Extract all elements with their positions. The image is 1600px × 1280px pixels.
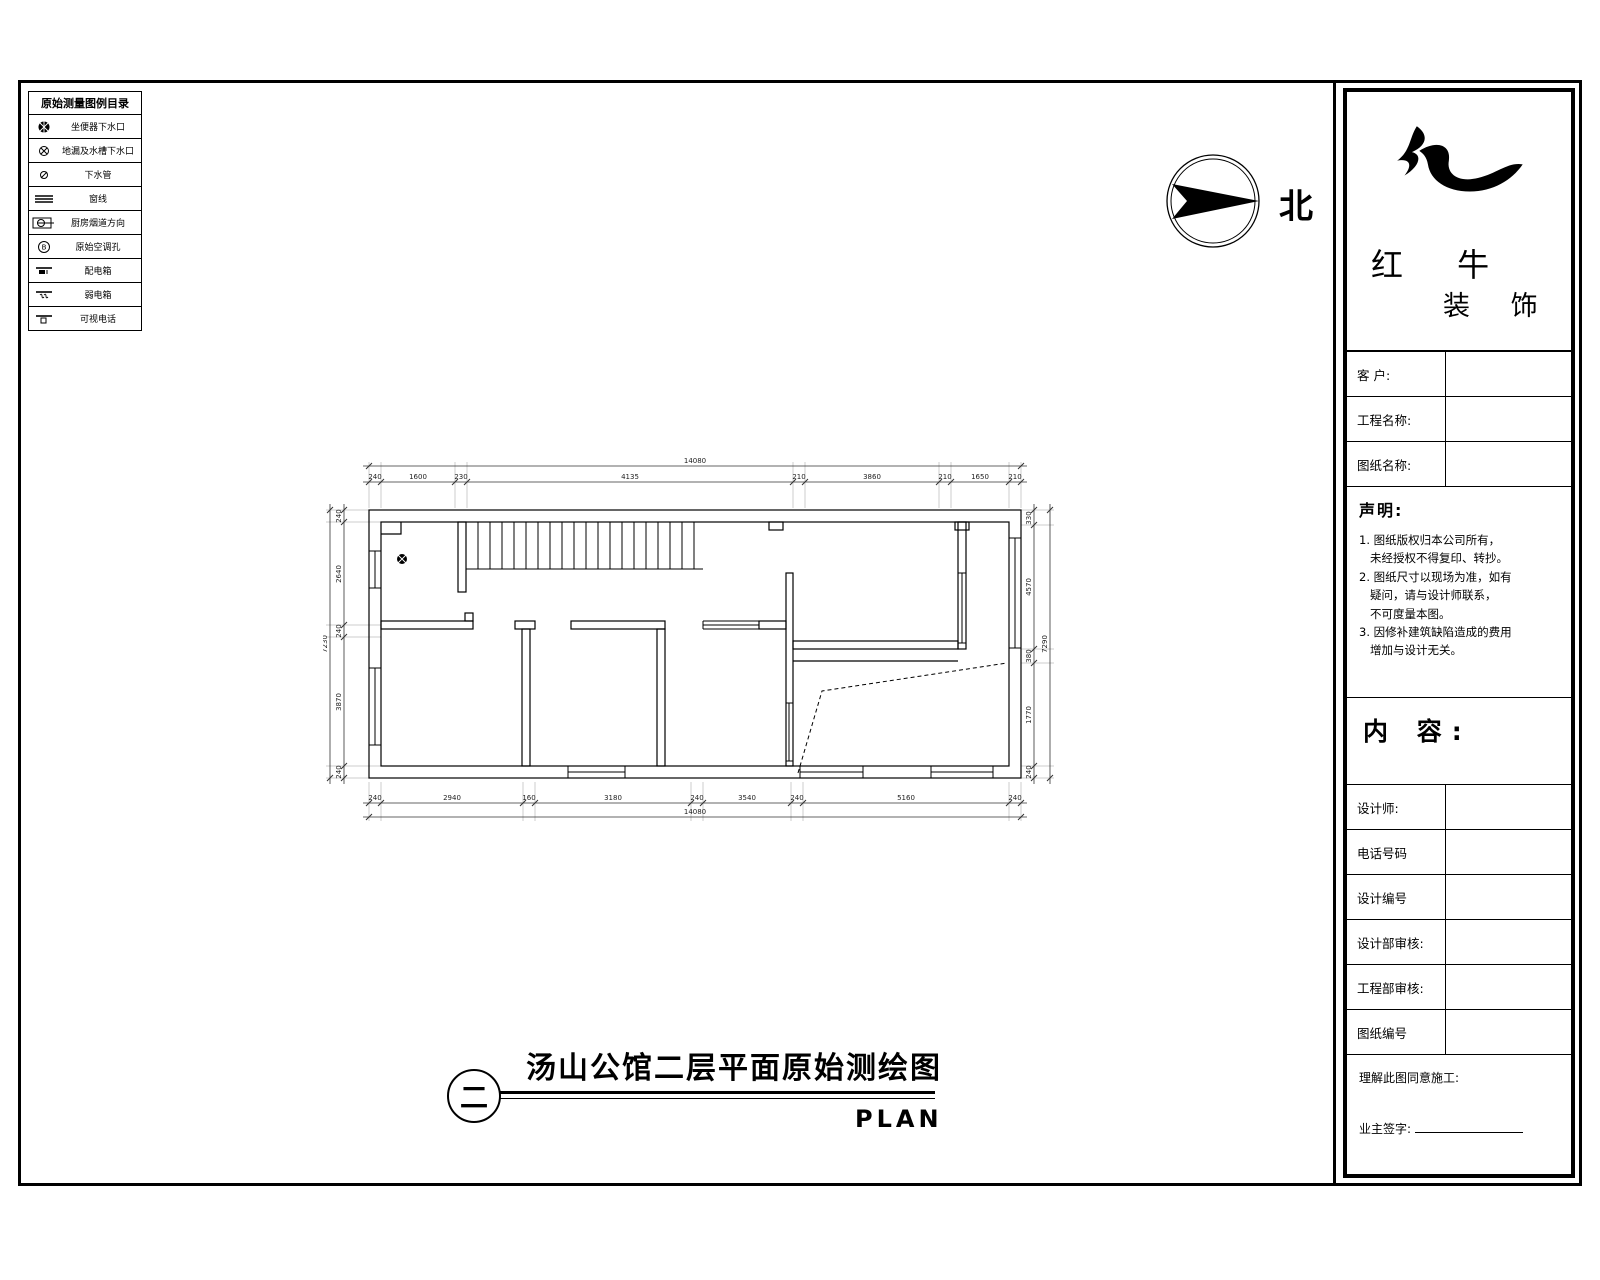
svg-text:14080: 14080 <box>684 457 706 465</box>
svg-text:3870: 3870 <box>335 693 343 711</box>
outer-wall <box>369 510 1021 778</box>
legend-item-label: 弱电箱 <box>57 288 139 301</box>
legend-item-label: 坐便器下水口 <box>57 120 139 133</box>
field-value <box>1446 352 1571 396</box>
statement-line: 疑问，请与设计师联系， <box>1359 586 1563 604</box>
field-design-dept-review: 设计部审核: <box>1347 920 1571 965</box>
legend-item-label: 原始空调孔 <box>57 240 139 253</box>
field-value <box>1446 875 1571 919</box>
svg-text:240: 240 <box>335 624 343 637</box>
svg-text:230: 230 <box>454 473 467 481</box>
toilet-drain-icon <box>31 120 57 134</box>
field-value <box>1446 965 1571 1009</box>
logo-section: 红 牛 装 饰 <box>1347 92 1571 352</box>
legend-item-label: 配电箱 <box>57 264 139 277</box>
field-value <box>1446 830 1571 874</box>
field-label: 工程部审核: <box>1347 965 1446 1009</box>
statement-heading: 声明: <box>1359 497 1563 521</box>
signature-section: 理解此图同意施工: 业主签字: <box>1347 1055 1571 1174</box>
windows <box>369 538 1021 778</box>
svg-text:240: 240 <box>335 765 343 778</box>
ac-hole-icon: B <box>31 240 57 254</box>
svg-text:240: 240 <box>368 794 381 802</box>
svg-text:B: B <box>42 243 47 251</box>
svg-text:4570: 4570 <box>1025 578 1033 596</box>
statement-line: 未经授权不得复印、转抄。 <box>1359 549 1563 567</box>
svg-text:4135: 4135 <box>621 473 639 481</box>
field-designer: 设计师: <box>1347 785 1571 830</box>
svg-text:3540: 3540 <box>738 794 756 802</box>
svg-text:7230: 7230 <box>323 635 329 653</box>
legend-item: 配电箱 <box>29 258 141 282</box>
walls <box>369 510 1021 778</box>
field-eng-dept-review: 工程部审核: <box>1347 965 1571 1010</box>
drawing-sheet: 原始测量图例目录 坐便器下水口 地漏及水槽下水口 下水管 窗线 <box>0 0 1600 1280</box>
field-design-number: 设计编号 <box>1347 875 1571 920</box>
drain-pipe-icon <box>31 169 57 181</box>
svg-text:240: 240 <box>790 794 803 802</box>
window-line-icon <box>31 194 57 204</box>
north-arrow <box>1172 184 1259 219</box>
plan-label: PLAN <box>855 1105 943 1133</box>
floor-drain-symbol <box>397 554 407 564</box>
statement-line: 1. 图纸版权归本公司所有， <box>1359 531 1563 549</box>
svg-text:3860: 3860 <box>863 473 881 481</box>
field-value <box>1446 785 1571 829</box>
field-label: 工程名称: <box>1347 397 1446 441</box>
video-phone-icon <box>31 313 57 325</box>
legend-item: 下水管 <box>29 162 141 186</box>
field-label: 设计部审核: <box>1347 920 1446 964</box>
legend-title: 原始测量图例目录 <box>28 91 142 115</box>
company-name-line2: 装 饰 <box>1443 284 1554 323</box>
title-rule <box>457 1091 935 1094</box>
corner-notch <box>381 522 401 534</box>
company-logo-icon <box>1375 118 1535 228</box>
agree-construction-label: 理解此图同意施工: <box>1359 1069 1563 1086</box>
sheet-number-symbol: 二 <box>447 1069 501 1123</box>
content-section: 内 容: <box>1347 698 1571 785</box>
field-drawing-name: 图纸名称: <box>1347 442 1571 487</box>
company-name-line1: 红 牛 <box>1371 240 1511 286</box>
svg-text:240: 240 <box>690 794 703 802</box>
svg-text:380: 380 <box>1025 649 1033 662</box>
sheet-title: 汤山公馆二层平面原始测绘图 <box>526 1043 942 1087</box>
inner-wall <box>381 522 1009 766</box>
signature-line <box>1415 1120 1523 1133</box>
field-label: 图纸名称: <box>1347 442 1446 486</box>
field-client: 客 户: <box>1347 352 1571 397</box>
field-label: 图纸编号 <box>1347 1010 1446 1054</box>
field-drawing-number: 图纸编号 <box>1347 1010 1571 1055</box>
field-label: 设计编号 <box>1347 875 1446 919</box>
title-rule <box>457 1098 935 1099</box>
svg-text:210: 210 <box>938 473 951 481</box>
legend-item: 厨房烟道方向 <box>29 210 141 234</box>
legend-item-label: 厨房烟道方向 <box>57 216 139 229</box>
compass-graphic <box>1153 141 1278 261</box>
field-label: 电话号码 <box>1347 830 1446 874</box>
svg-text:7290: 7290 <box>1041 635 1049 653</box>
legend-item: 窗线 <box>29 186 141 210</box>
border-frame: 原始测量图例目录 坐便器下水口 地漏及水槽下水口 下水管 窗线 <box>18 80 1582 1186</box>
field-value <box>1446 397 1571 441</box>
dimension-labels: 240 1600 230 4135 210 3860 210 1650 210 … <box>323 457 1049 816</box>
statement-section: 声明: 1. 图纸版权归本公司所有， 未经授权不得复印、转抄。 2. 图纸尺寸以… <box>1347 487 1571 698</box>
svg-text:5160: 5160 <box>897 794 915 802</box>
field-project-name: 工程名称: <box>1347 397 1571 442</box>
owner-signature-text: 业主签字: <box>1359 1122 1411 1136</box>
legend-item-label: 地漏及水槽下水口 <box>57 144 139 157</box>
legend-item-label: 可视电话 <box>57 312 139 325</box>
svg-text:330: 330 <box>1025 511 1033 524</box>
content-heading: 内 容: <box>1363 712 1472 748</box>
legend-item: 可视电话 <box>29 306 141 330</box>
svg-text:210: 210 <box>1008 473 1021 481</box>
kitchen-flue-icon <box>31 215 57 231</box>
field-label: 设计师: <box>1347 785 1446 829</box>
power-box-icon <box>31 265 57 277</box>
svg-text:2640: 2640 <box>335 565 343 583</box>
statement-line: 2. 图纸尺寸以现场为准，如有 <box>1359 568 1563 586</box>
field-label: 客 户: <box>1347 352 1446 396</box>
field-value <box>1446 920 1571 964</box>
stairs <box>466 522 703 569</box>
field-phone: 电话号码 <box>1347 830 1571 875</box>
legend-item: 弱电箱 <box>29 282 141 306</box>
title-block-panel: 红 牛 装 饰 客 户: 工程名称: 图纸名称: 声明: 1. <box>1333 83 1579 1183</box>
svg-text:3180: 3180 <box>604 794 622 802</box>
svg-text:1600: 1600 <box>409 473 427 481</box>
legend-item-label: 窗线 <box>57 192 139 205</box>
svg-text:210: 210 <box>792 473 805 481</box>
dashed-slope-line <box>798 663 1007 773</box>
svg-text:240: 240 <box>335 509 343 522</box>
statement-line: 增加与设计无关。 <box>1359 641 1563 659</box>
svg-text:240: 240 <box>1025 765 1033 778</box>
field-value <box>1446 1010 1571 1054</box>
legend-item-label: 下水管 <box>57 168 139 181</box>
weak-box-icon <box>31 289 57 301</box>
legend-item: 坐便器下水口 <box>29 114 141 138</box>
svg-text:2940: 2940 <box>443 794 461 802</box>
legend-box: 原始测量图例目录 坐便器下水口 地漏及水槽下水口 下水管 窗线 <box>28 91 142 331</box>
north-compass: 北 <box>1153 141 1278 265</box>
statement-line: 3. 因修补建筑缺陷造成的费用 <box>1359 623 1563 641</box>
north-label: 北 <box>1279 179 1313 228</box>
statement-line: 不可度量本图。 <box>1359 605 1563 623</box>
floor-plan: 240 1600 230 4135 210 3860 210 1650 210 … <box>323 443 1063 843</box>
svg-text:240: 240 <box>1008 794 1021 802</box>
svg-text:160: 160 <box>522 794 535 802</box>
field-value <box>1446 442 1571 486</box>
svg-text:240: 240 <box>368 473 381 481</box>
svg-text:1650: 1650 <box>971 473 989 481</box>
svg-text:14080: 14080 <box>684 808 706 816</box>
owner-signature-label: 业主签字: <box>1359 1120 1563 1137</box>
legend-item: 地漏及水槽下水口 <box>29 138 141 162</box>
title-block-inner: 红 牛 装 饰 客 户: 工程名称: 图纸名称: 声明: 1. <box>1343 88 1575 1178</box>
legend-item: B 原始空调孔 <box>29 234 141 258</box>
svg-text:1770: 1770 <box>1025 706 1033 724</box>
floor-drain-icon <box>31 144 57 158</box>
